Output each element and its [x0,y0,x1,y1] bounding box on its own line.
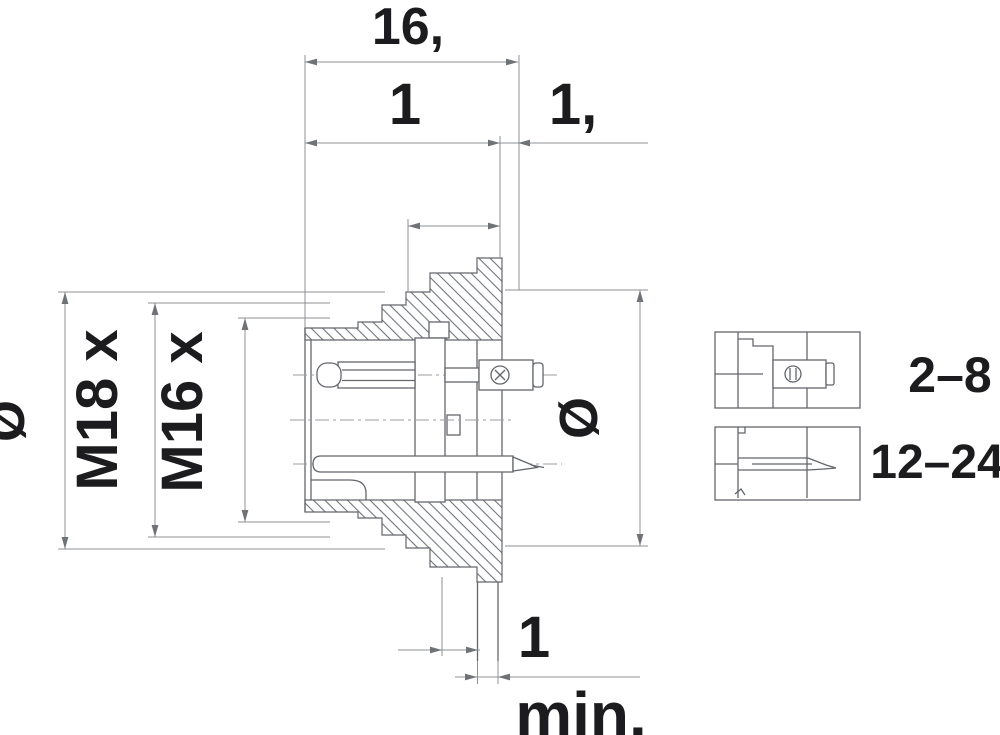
contact-range-label-upper: 2–8 [908,347,991,403]
lower-blade-contact [313,456,544,472]
contact-detail-box-screw: 2–8 [715,332,992,408]
contact-holder [447,415,460,435]
section-bottom-wall [305,500,502,582]
technical-drawing-page: 16, 1 1, Ø M18 x [0,0,1000,735]
collar-key [429,322,449,338]
dimension-terminal-min: 1 min. [455,605,647,735]
connector-section-view [290,258,562,661]
dim-label-overall-width: 16, [372,0,444,56]
diameter-symbol-right: Ø [549,397,609,439]
dim-label-terminal-min: min. [515,679,647,735]
dimension-body-and-flange: 1 1, [305,72,648,257]
dim-label-body-width: 1 [389,72,421,137]
connector-technical-drawing: 16, 1 1, Ø M18 x [0,0,1000,735]
contact-detail-box-blade: 12–24 [715,427,1000,500]
dimension-bottom-offset [398,577,480,656]
contact-range-label-lower: 12–24 [870,436,1000,489]
diameter-symbol-left: Ø [0,400,36,442]
dimension-diameter-right: Ø [505,290,648,546]
dim-label-terminal: 1 [518,605,550,670]
dim-label-thread-inner: M16 x [150,331,215,492]
detail-screw-head [785,366,801,382]
dim-label-thread-outer: M18 x [65,329,130,490]
section-top-wall [305,258,502,340]
dim-label-flange-thickness: 1, [549,72,597,137]
